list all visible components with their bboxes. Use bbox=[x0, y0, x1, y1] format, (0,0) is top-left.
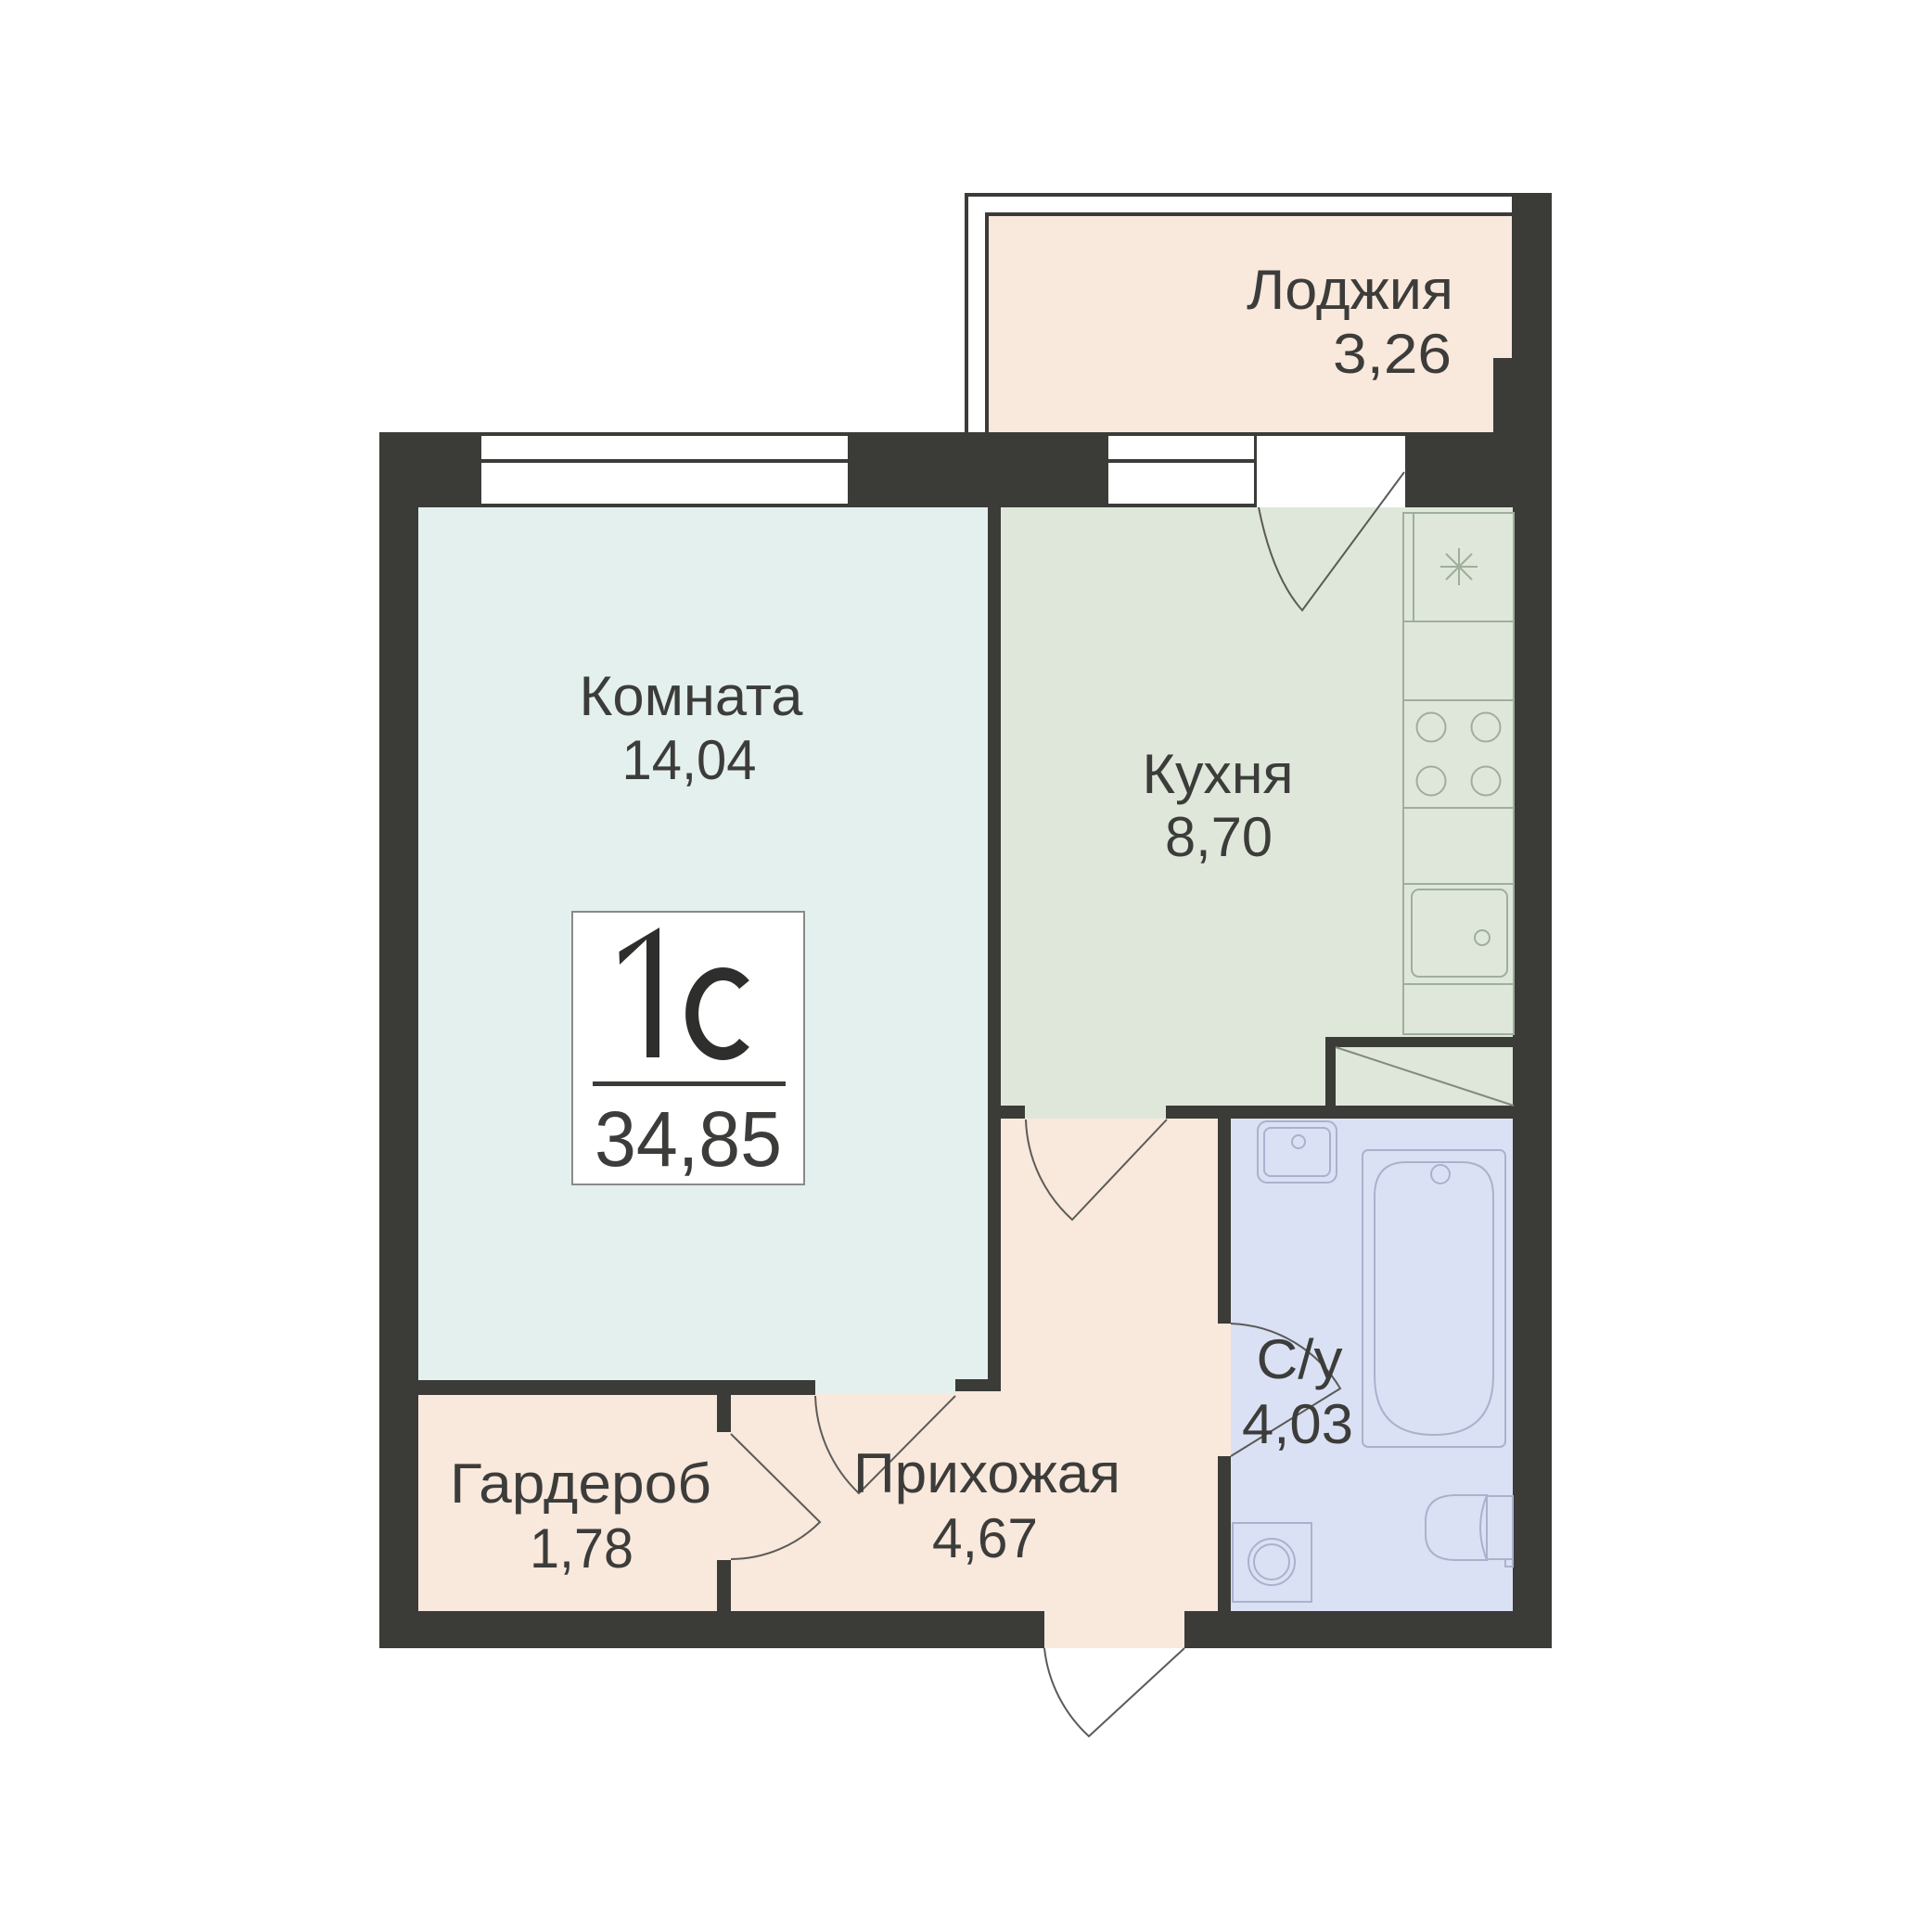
svg-text:Лоджия: Лоджия bbox=[1247, 259, 1453, 321]
svg-text:Гардероб: Гардероб bbox=[450, 1452, 711, 1515]
svg-text:Кухня: Кухня bbox=[1143, 743, 1294, 805]
svg-text:14,04: 14,04 bbox=[622, 729, 757, 791]
svg-text:4,03: 4,03 bbox=[1242, 1393, 1353, 1455]
svg-text:3,26: 3,26 bbox=[1333, 323, 1452, 385]
svg-text:8,70: 8,70 bbox=[1165, 806, 1273, 868]
svg-text:4,67: 4,67 bbox=[932, 1507, 1038, 1569]
svg-text:Комната: Комната bbox=[580, 665, 804, 727]
svg-text:Прихожая: Прихожая bbox=[853, 1442, 1120, 1504]
svg-text:34,85: 34,85 bbox=[595, 1095, 782, 1183]
svg-text:С/у: С/у bbox=[1257, 1328, 1343, 1390]
svg-text:1,78: 1,78 bbox=[530, 1517, 633, 1580]
